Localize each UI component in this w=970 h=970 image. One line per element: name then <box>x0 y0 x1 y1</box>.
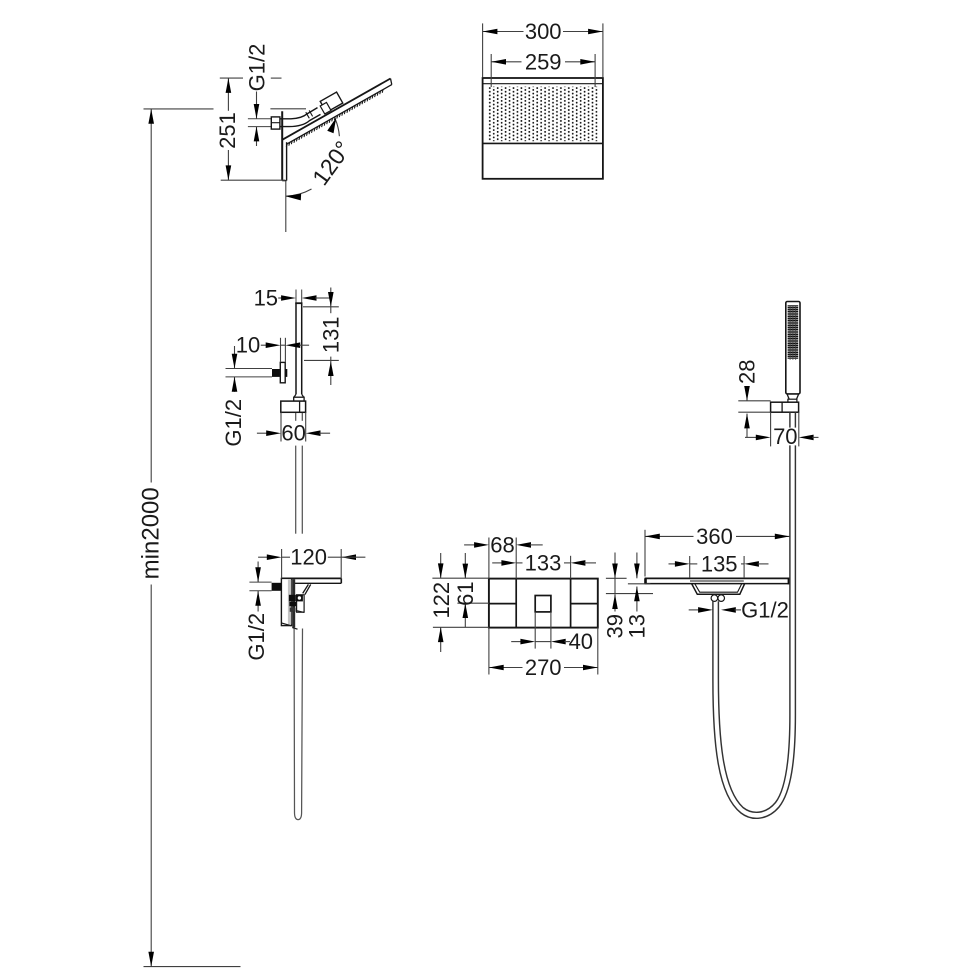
svg-text:300: 300 <box>525 19 562 44</box>
svg-text:259: 259 <box>525 49 562 74</box>
svg-text:60: 60 <box>281 421 305 446</box>
svg-text:10: 10 <box>236 333 260 358</box>
svg-text:G1/2: G1/2 <box>244 613 269 661</box>
svg-text:360: 360 <box>696 524 733 549</box>
svg-text:min2000: min2000 <box>138 487 165 579</box>
svg-text:131: 131 <box>319 316 344 353</box>
svg-text:G1/2: G1/2 <box>221 399 246 447</box>
svg-text:G1/2: G1/2 <box>741 598 789 623</box>
svg-text:68: 68 <box>490 533 514 558</box>
svg-text:120: 120 <box>290 545 327 570</box>
svg-text:133: 133 <box>525 550 562 575</box>
svg-text:13: 13 <box>625 614 650 638</box>
svg-text:40: 40 <box>569 629 593 654</box>
svg-text:61: 61 <box>453 581 478 605</box>
svg-text:G1/2: G1/2 <box>245 44 270 92</box>
svg-text:251: 251 <box>215 112 240 149</box>
svg-text:28: 28 <box>735 360 760 384</box>
svg-text:270: 270 <box>525 655 562 680</box>
svg-text:135: 135 <box>701 551 738 576</box>
svg-text:70: 70 <box>773 424 797 449</box>
svg-text:15: 15 <box>254 286 278 311</box>
svg-text:122: 122 <box>429 582 454 619</box>
